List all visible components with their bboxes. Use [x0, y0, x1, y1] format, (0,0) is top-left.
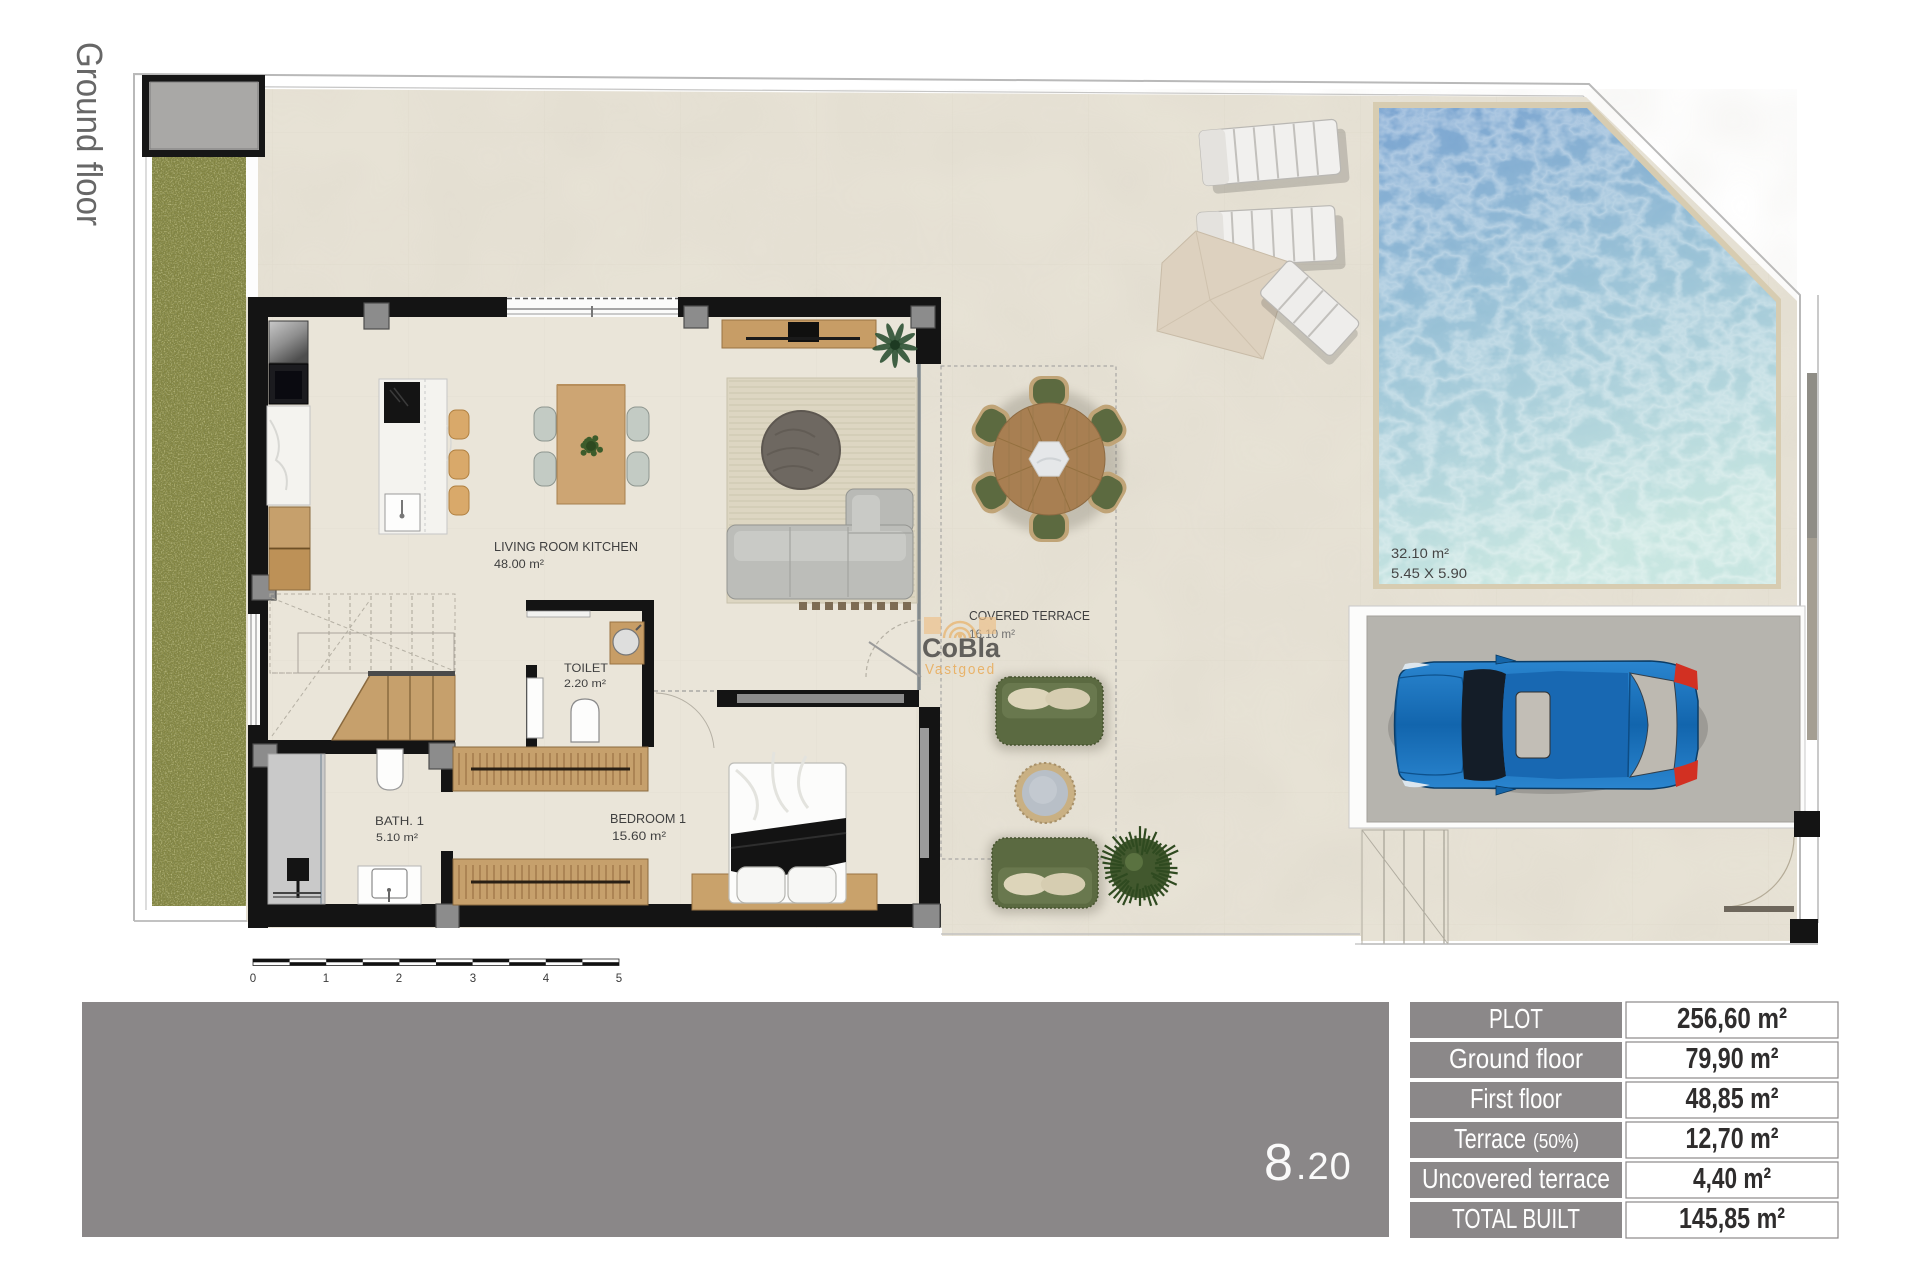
svg-text:PLOT: PLOT	[1489, 1003, 1543, 1034]
svg-text:5.10 m²: 5.10 m²	[376, 832, 418, 844]
svg-text:TOTAL BUILT: TOTAL BUILT	[1452, 1203, 1580, 1234]
svg-text:Terrace: Terrace	[1454, 1123, 1526, 1154]
svg-text:32.10 m²: 32.10 m²	[1391, 545, 1449, 561]
svg-text:Ground floor: Ground floor	[1449, 1043, 1583, 1074]
svg-text:15.60 m²: 15.60 m²	[612, 829, 666, 843]
svg-text:BATH. 1: BATH. 1	[375, 814, 424, 828]
svg-text:CoBla: CoBla	[922, 633, 1001, 663]
svg-text:3: 3	[470, 973, 476, 985]
svg-text:2.20 m²: 2.20 m²	[564, 678, 606, 690]
svg-text:5: 5	[616, 973, 622, 985]
svg-text:145,85 m²: 145,85 m²	[1679, 1203, 1785, 1235]
svg-text:5.45 X 5.90: 5.45 X 5.90	[1391, 565, 1467, 581]
svg-text:256,60 m²: 256,60 m²	[1677, 1003, 1787, 1035]
svg-text:4,40 m²: 4,40 m²	[1693, 1163, 1771, 1195]
svg-text:First floor: First floor	[1470, 1083, 1562, 1114]
svg-text:Uncovered terrace: Uncovered terrace	[1422, 1163, 1610, 1194]
svg-text:BEDROOM 1: BEDROOM 1	[610, 811, 686, 826]
svg-text:0: 0	[250, 973, 256, 985]
svg-text:79,90 m²: 79,90 m²	[1686, 1043, 1779, 1075]
svg-text:1: 1	[323, 973, 329, 985]
svg-text:12,70 m²: 12,70 m²	[1686, 1123, 1779, 1155]
svg-text:(50%): (50%)	[1533, 1131, 1579, 1153]
svg-text:48,85 m²: 48,85 m²	[1686, 1083, 1779, 1115]
svg-text:Ground floor: Ground floor	[69, 42, 110, 226]
svg-text:48.00 m²: 48.00 m²	[494, 557, 544, 571]
svg-text:TOILET: TOILET	[564, 661, 609, 675]
svg-text:4: 4	[543, 973, 550, 985]
svg-text:LIVING ROOM KITCHEN: LIVING ROOM KITCHEN	[494, 539, 638, 554]
svg-text:Vastgoed: Vastgoed	[925, 661, 996, 678]
svg-text:2: 2	[396, 973, 402, 985]
